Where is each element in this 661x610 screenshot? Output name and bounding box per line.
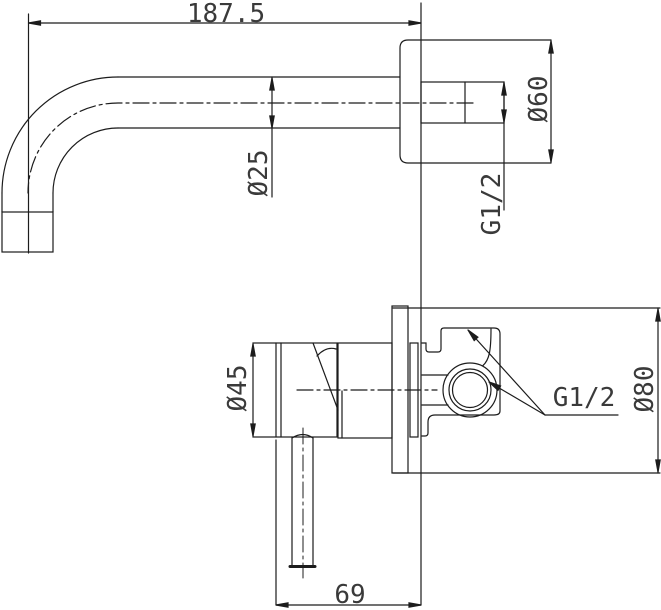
- port-boss: [443, 363, 497, 417]
- dim-187-5: [29, 14, 422, 253]
- valve-side-view: [253, 306, 500, 578]
- technical-drawing-canvas: 187.5 Ø25 Ø60 G1/2 Ø45 G1/2 Ø80 69: [0, 0, 661, 610]
- dim-label-flange-diameter: Ø60: [525, 49, 553, 149]
- spout-side-view: [2, 40, 551, 252]
- dim-label-spout-diameter: Ø25: [245, 123, 273, 223]
- dim-label-spout-reach: 187.5: [186, 0, 266, 28]
- spout-tip: [2, 212, 53, 252]
- valve-body: [422, 328, 500, 436]
- lever-handle: [290, 428, 315, 578]
- dim-label-spout-inlet-thread: G1/2: [478, 154, 506, 254]
- dim-label-trim-depth: 69: [330, 581, 370, 609]
- dim-label-handle-trim-diameter: Ø45: [224, 338, 252, 438]
- faucet-technical-drawing: [0, 0, 661, 610]
- dim-label-valve-port-thread: G1/2: [549, 384, 619, 412]
- dim-label-wall-plate-diameter: Ø80: [631, 339, 659, 439]
